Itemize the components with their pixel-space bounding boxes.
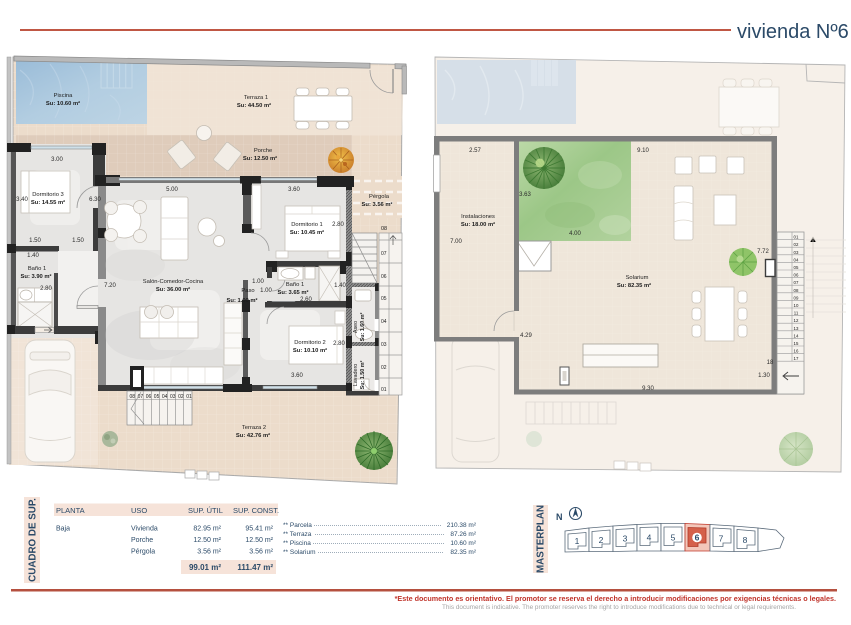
svg-text:04: 04 xyxy=(794,257,799,262)
svg-text:12.50 m²: 12.50 m² xyxy=(245,537,273,544)
svg-text:02: 02 xyxy=(381,365,387,371)
svg-text:5: 5 xyxy=(671,533,676,543)
svg-text:Dormitorio 1: Dormitorio 1 xyxy=(291,222,323,228)
svg-text:1.30: 1.30 xyxy=(758,373,770,379)
svg-text:Su: 10.10 m²: Su: 10.10 m² xyxy=(293,347,327,354)
svg-text:SUP. ÚTIL: SUP. ÚTIL xyxy=(188,506,223,515)
svg-text:Su: 1.00 m²: Su: 1.00 m² xyxy=(227,297,258,304)
svg-text:Instalaciones: Instalaciones xyxy=(461,214,495,220)
svg-text:16: 16 xyxy=(794,349,799,354)
svg-text:3: 3 xyxy=(623,534,628,544)
svg-text:Aseo: Aseo xyxy=(353,321,359,333)
svg-text:1: 1 xyxy=(575,536,580,546)
svg-text:07: 07 xyxy=(381,251,387,257)
svg-text:10.60 m²: 10.60 m² xyxy=(450,540,476,547)
svg-text:1.50: 1.50 xyxy=(29,238,41,244)
svg-text:Baja: Baja xyxy=(56,526,70,533)
svg-text:Vivienda: Vivienda xyxy=(131,526,158,533)
svg-text:2.60: 2.60 xyxy=(300,297,312,303)
svg-text:06: 06 xyxy=(381,274,387,280)
svg-text:** Parcela: ** Parcela xyxy=(283,522,312,529)
svg-text:3.00: 3.00 xyxy=(51,157,63,163)
svg-text:82.95 m²: 82.95 m² xyxy=(193,526,221,533)
svg-text:Porche: Porche xyxy=(254,148,272,154)
svg-text:05: 05 xyxy=(794,265,799,270)
svg-text:Pérgola: Pérgola xyxy=(369,194,390,200)
svg-text:Porche: Porche xyxy=(131,537,153,544)
svg-text:4.00: 4.00 xyxy=(569,231,581,237)
svg-text:3.60: 3.60 xyxy=(291,373,303,379)
svg-text:08: 08 xyxy=(794,288,799,293)
svg-text:Dormitorio 3: Dormitorio 3 xyxy=(32,192,64,198)
svg-text:Dormitorio 2: Dormitorio 2 xyxy=(294,340,326,346)
svg-text:82.35 m²: 82.35 m² xyxy=(450,549,476,556)
svg-text:9.30: 9.30 xyxy=(642,386,654,392)
svg-text:06: 06 xyxy=(794,273,799,278)
svg-text:15: 15 xyxy=(794,341,799,346)
svg-text:12: 12 xyxy=(794,318,799,323)
svg-text:Su: 82.35 m²: Su: 82.35 m² xyxy=(617,282,651,289)
svg-text:04: 04 xyxy=(162,394,168,400)
svg-text:Terraza 2: Terraza 2 xyxy=(242,425,266,431)
svg-text:01: 01 xyxy=(186,394,192,400)
svg-text:10: 10 xyxy=(794,303,799,308)
svg-text:111.47 m²: 111.47 m² xyxy=(237,563,273,572)
svg-text:Su: 3.56 m²: Su: 3.56 m² xyxy=(362,201,393,208)
svg-text:13: 13 xyxy=(794,326,799,331)
svg-text:N: N xyxy=(556,512,563,522)
svg-text:*Este documento es orientativo: *Este documento es orientativo. El promo… xyxy=(395,594,836,603)
svg-text:2.57: 2.57 xyxy=(469,148,481,154)
svg-text:Piscina: Piscina xyxy=(54,93,73,99)
svg-text:7: 7 xyxy=(719,534,724,544)
svg-text:PLANTA: PLANTA xyxy=(56,506,85,515)
svg-text:8: 8 xyxy=(743,535,748,545)
svg-text:4: 4 xyxy=(647,533,652,543)
svg-text:3.40: 3.40 xyxy=(16,197,28,203)
svg-text:08: 08 xyxy=(381,226,387,232)
svg-text:05: 05 xyxy=(154,394,160,400)
svg-text:07: 07 xyxy=(794,280,799,285)
svg-text:210.38 m²: 210.38 m² xyxy=(447,522,477,529)
svg-text:3.60: 3.60 xyxy=(288,187,300,193)
svg-text:Su: 18.00 m²: Su: 18.00 m² xyxy=(461,221,495,228)
svg-text:Su: 3.65 m²: Su: 3.65 m² xyxy=(278,289,309,296)
svg-text:09: 09 xyxy=(794,295,799,300)
svg-text:Su: 12.50 m²: Su: 12.50 m² xyxy=(243,155,277,162)
svg-text:Salón-Comedor-Cocina: Salón-Comedor-Cocina xyxy=(143,279,204,285)
svg-text:** Terraza: ** Terraza xyxy=(283,531,312,538)
svg-text:5.00: 5.00 xyxy=(166,187,178,193)
svg-text:Solarium: Solarium xyxy=(626,275,649,281)
svg-text:99.01 m²: 99.01 m² xyxy=(189,563,221,572)
svg-text:02: 02 xyxy=(794,242,799,247)
svg-text:MASTERPLAN: MASTERPLAN xyxy=(536,505,547,573)
svg-text:05: 05 xyxy=(381,296,387,302)
svg-text:2: 2 xyxy=(599,535,604,545)
svg-text:3.56 m²: 3.56 m² xyxy=(197,549,221,556)
svg-text:1.50: 1.50 xyxy=(72,238,84,244)
svg-text:1.00: 1.00 xyxy=(260,288,272,294)
svg-text:Pérgola: Pérgola xyxy=(131,549,155,556)
svg-text:Baño 1: Baño 1 xyxy=(286,282,304,288)
svg-text:USO: USO xyxy=(131,506,147,515)
svg-text:95.41 m²: 95.41 m² xyxy=(245,526,273,533)
svg-text:4.29: 4.29 xyxy=(520,333,532,339)
svg-text:6: 6 xyxy=(695,533,700,543)
svg-text:Su: 10.45 m²: Su: 10.45 m² xyxy=(290,229,324,236)
svg-text:** Piscina: ** Piscina xyxy=(283,540,311,547)
svg-text:Paso: Paso xyxy=(241,288,254,294)
svg-text:03: 03 xyxy=(170,394,176,400)
svg-text:04: 04 xyxy=(381,319,387,325)
svg-text:02: 02 xyxy=(178,394,184,400)
svg-text:7.20: 7.20 xyxy=(104,283,116,289)
svg-text:18: 18 xyxy=(767,360,774,366)
svg-text:Su: 3.90 m²: Su: 3.90 m² xyxy=(21,273,52,280)
svg-text:vivienda Nº6: vivienda Nº6 xyxy=(737,21,849,43)
svg-text:Su: 10.60 m²: Su: 10.60 m² xyxy=(46,100,80,107)
svg-text:3.56 m²: 3.56 m² xyxy=(249,549,273,556)
svg-text:Terraza 1: Terraza 1 xyxy=(244,95,268,101)
svg-text:1.40: 1.40 xyxy=(27,253,39,259)
svg-text:Su: 14.55 m²: Su: 14.55 m² xyxy=(31,199,65,206)
svg-text:Lavadero: Lavadero xyxy=(353,364,359,386)
svg-text:2.80: 2.80 xyxy=(40,286,52,292)
svg-text:9.10: 9.10 xyxy=(637,148,649,154)
svg-text:06: 06 xyxy=(146,394,152,400)
svg-text:1.40: 1.40 xyxy=(334,283,346,289)
svg-text:Su: 1.60 m²: Su: 1.60 m² xyxy=(360,312,366,341)
svg-text:01: 01 xyxy=(381,387,387,393)
svg-text:08: 08 xyxy=(130,394,136,400)
svg-text:3.63: 3.63 xyxy=(519,192,531,198)
svg-text:7.00: 7.00 xyxy=(450,239,462,245)
svg-text:01: 01 xyxy=(794,235,799,240)
svg-text:Baño 1: Baño 1 xyxy=(28,266,46,272)
svg-text:14: 14 xyxy=(794,333,799,338)
svg-text:2.80: 2.80 xyxy=(333,341,345,347)
svg-text:11: 11 xyxy=(794,311,799,316)
svg-text:17: 17 xyxy=(794,356,799,361)
svg-text:CUADRO DE SUP.: CUADRO DE SUP. xyxy=(27,498,38,582)
svg-text:This document is indicative. T: This document is indicative. The promote… xyxy=(442,604,796,611)
svg-text:87.26 m²: 87.26 m² xyxy=(450,531,476,538)
svg-text:Su: 36.00 m²: Su: 36.00 m² xyxy=(156,286,190,293)
svg-text:7.72: 7.72 xyxy=(757,249,769,255)
svg-text:12.50 m²: 12.50 m² xyxy=(193,537,221,544)
svg-text:Su: 42.76 m²: Su: 42.76 m² xyxy=(236,432,270,439)
svg-text:2.80: 2.80 xyxy=(332,222,344,228)
svg-text:07: 07 xyxy=(138,394,144,400)
svg-text:SUP. CONST.: SUP. CONST. xyxy=(233,506,279,515)
svg-text:03: 03 xyxy=(381,342,387,348)
svg-text:Su: 44.50 m²: Su: 44.50 m² xyxy=(237,102,271,109)
svg-text:6.30: 6.30 xyxy=(89,197,101,203)
svg-text:1.00: 1.00 xyxy=(252,279,264,285)
svg-text:03: 03 xyxy=(794,250,799,255)
svg-text:** Solarium: ** Solarium xyxy=(283,549,316,556)
